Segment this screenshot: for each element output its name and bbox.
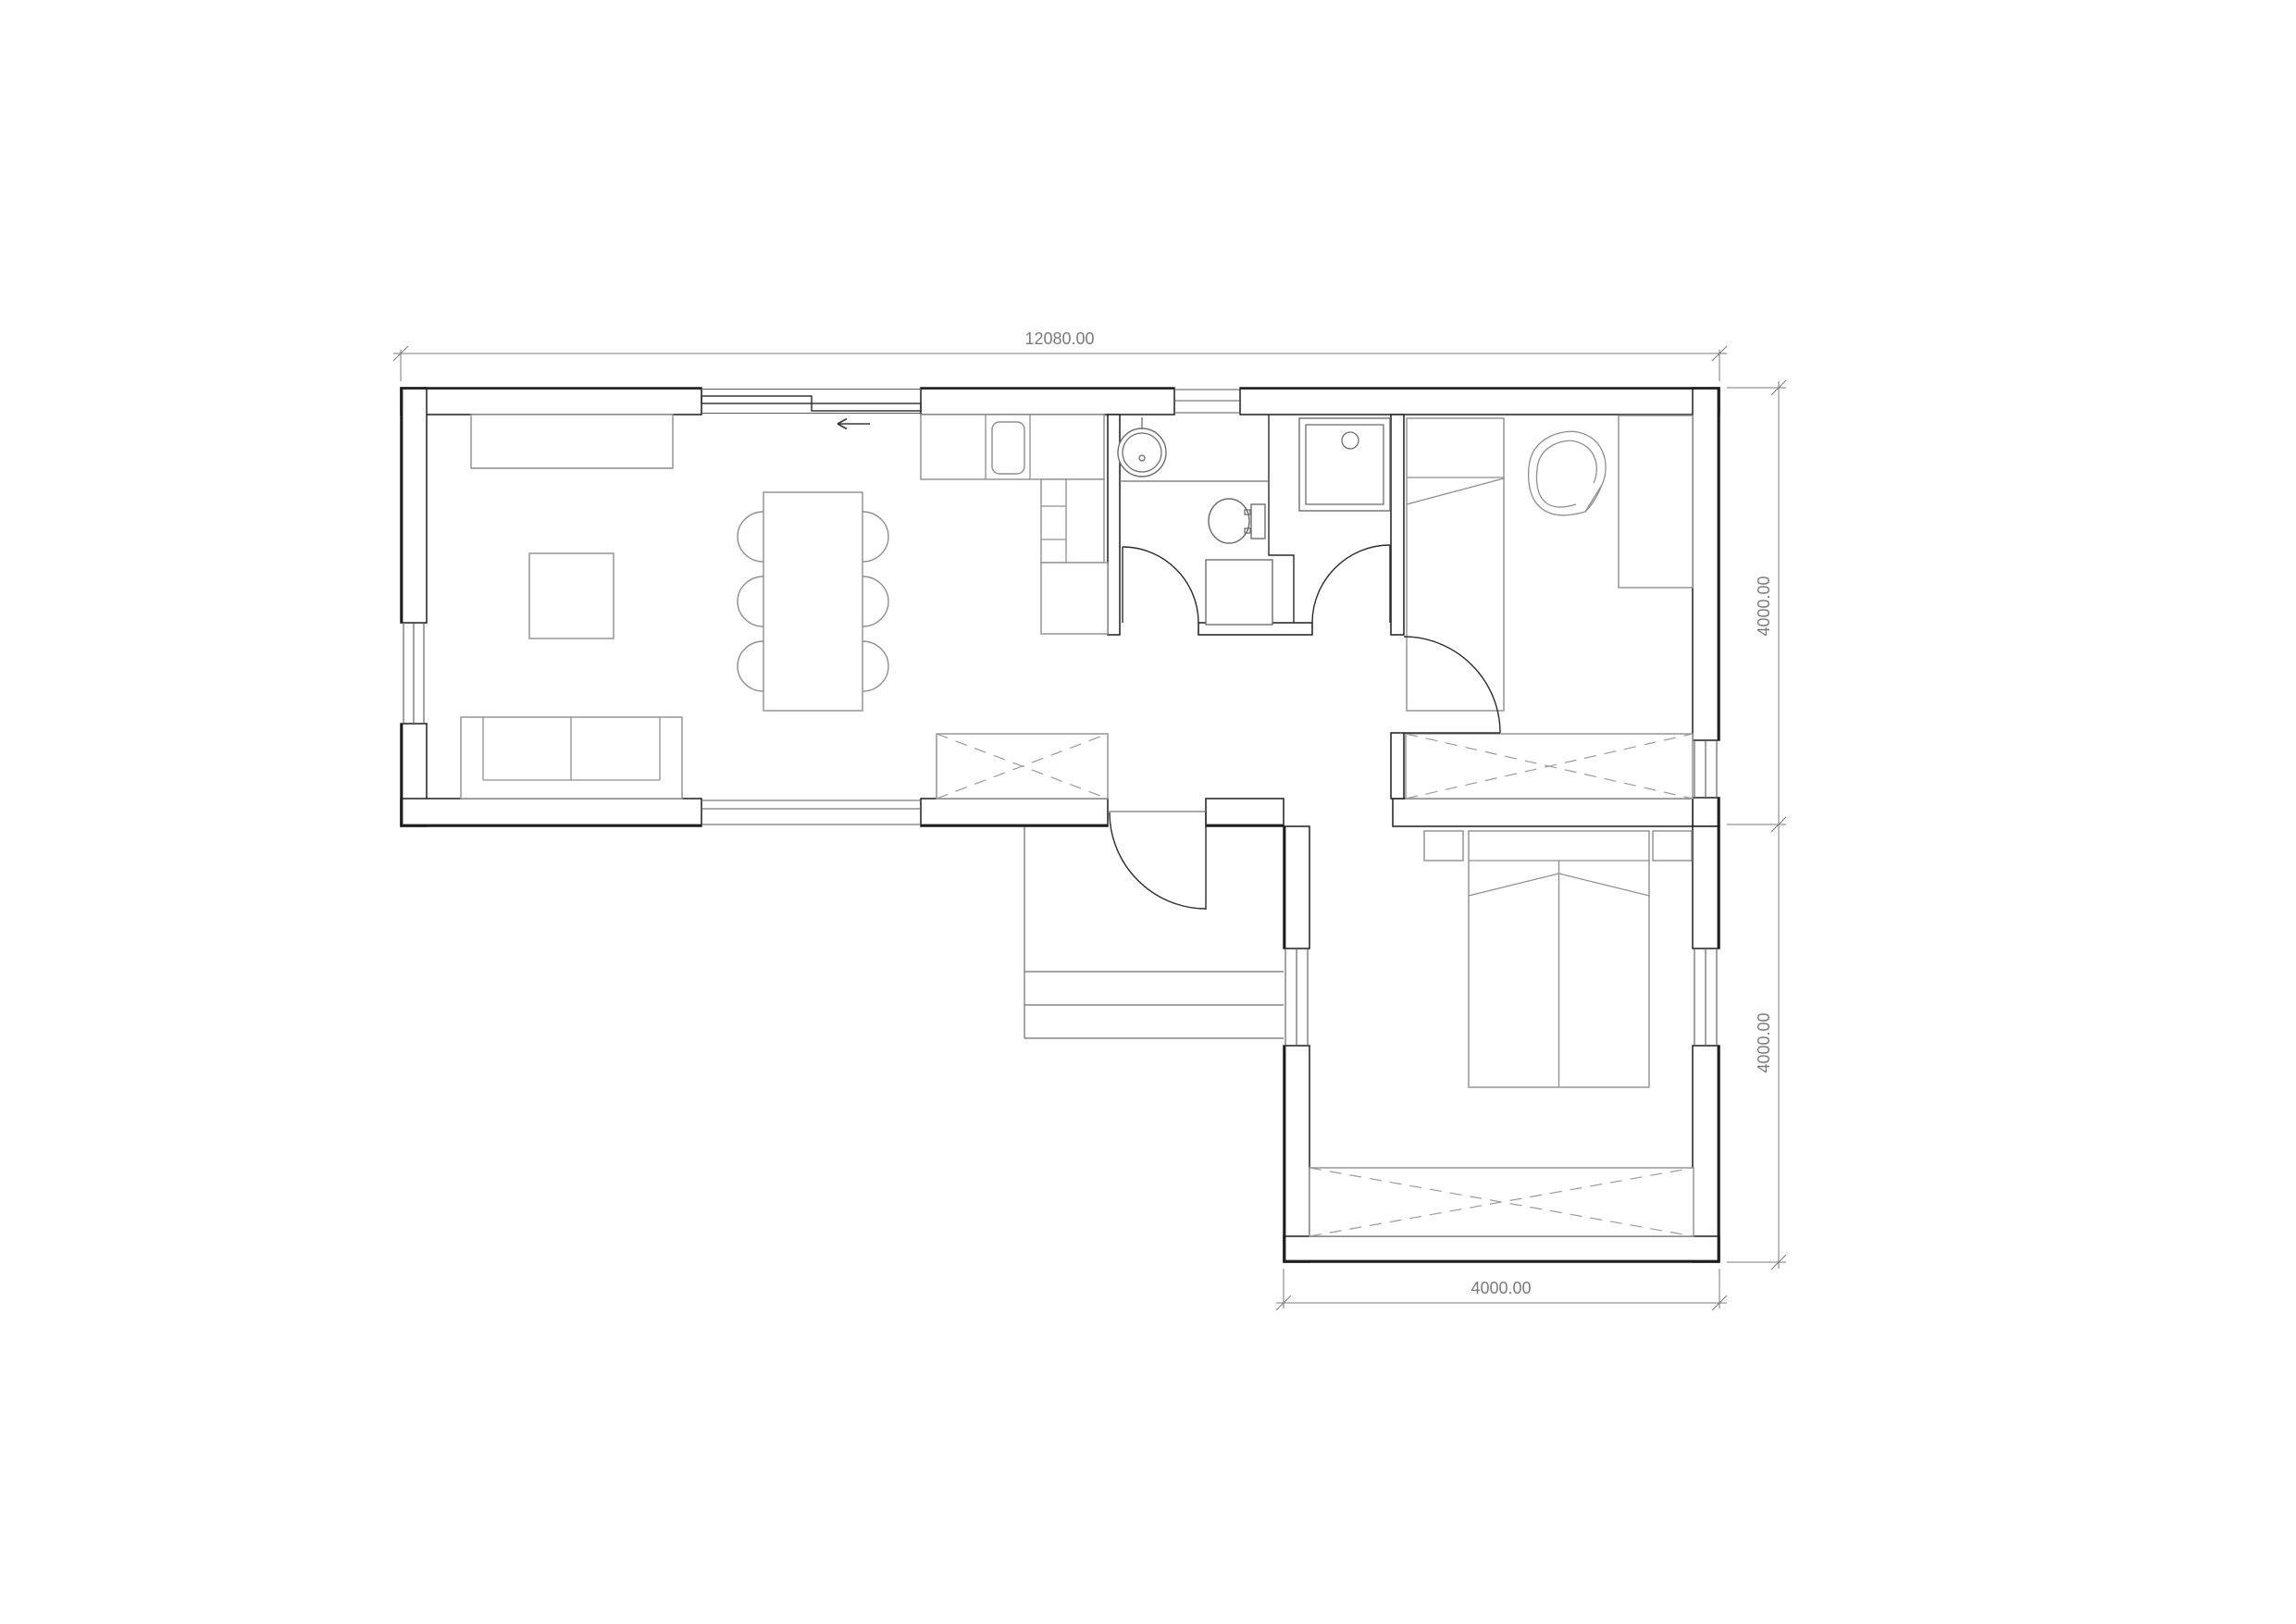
nightstand-right <box>1653 831 1692 861</box>
wall-south-middle <box>921 799 1108 826</box>
wall-wing-west-lower <box>1284 1046 1309 1262</box>
wc-door <box>1123 547 1198 623</box>
wall-top-left <box>401 388 701 415</box>
toilet <box>1209 499 1265 543</box>
window-living-south <box>701 800 921 824</box>
window-wing-west <box>1285 948 1308 1046</box>
sofa <box>461 717 682 799</box>
wall-east-upper <box>1693 388 1719 740</box>
wall-wing-east-lower <box>1693 1046 1719 1262</box>
window-bathroom-top <box>1174 390 1240 413</box>
dimension-label-bottom: 4000.00 <box>1471 1279 1531 1297</box>
wall-wing-east-upper <box>1693 826 1719 948</box>
wall-bedroom-west-lower <box>1391 733 1404 799</box>
washbasin <box>1118 417 1269 481</box>
floor-plan: 12080.00 4000.00 4000.00 4000.00 <box>0 0 2296 1624</box>
dimension-top: 12080.00 <box>393 329 1727 381</box>
sliding-window-top <box>701 390 921 414</box>
window-wing-east <box>1694 948 1717 1046</box>
dimension-bottom: 4000.00 <box>1276 1269 1727 1310</box>
dining-table <box>763 492 863 711</box>
floor-plan-canvas: 12080.00 4000.00 4000.00 4000.00 <box>0 0 2296 1624</box>
wall-east-mid <box>1693 798 1719 826</box>
window-west <box>403 623 424 724</box>
wall-south-right <box>1206 799 1284 826</box>
dimension-label-right-upper: 4000.00 <box>1755 576 1773 636</box>
kitchen-tall-unit <box>1041 563 1108 634</box>
wardrobe-bedroom-east <box>1406 734 1693 799</box>
wall-top-middle <box>921 388 1174 415</box>
coffee-table <box>529 553 614 638</box>
kitchen-sink <box>992 422 1024 474</box>
double-bed <box>1469 831 1649 1087</box>
wall-top-right <box>1240 388 1719 415</box>
dimension-right-lower: 4000.00 <box>1727 824 1786 1270</box>
wall-west-upper <box>401 388 427 623</box>
shower-room-door <box>1312 545 1390 623</box>
washing-machine <box>1206 560 1272 625</box>
wall-bedroom-west-upper <box>1391 415 1404 635</box>
desk <box>1619 415 1693 588</box>
dimension-label-right-lower: 4000.00 <box>1755 1012 1773 1072</box>
single-bed <box>1407 418 1504 711</box>
armchair <box>1529 431 1606 514</box>
entrance-steps <box>1024 826 1284 1038</box>
shower-tray <box>1299 418 1390 511</box>
wardrobe-bedroom-wing <box>1309 1168 1694 1236</box>
entry-door <box>1108 812 1206 910</box>
entry-closet <box>937 734 1108 799</box>
wall-wing-west-upper <box>1284 826 1309 948</box>
window-bedroom-east <box>1694 740 1717 798</box>
kitchen-counter <box>921 415 1104 479</box>
dimension-label-top: 12080.00 <box>1024 329 1094 348</box>
dimension-right-upper: 4000.00 <box>1727 380 1786 832</box>
wall-wing-top <box>1393 799 1693 826</box>
slide-direction-arrow-icon <box>838 419 870 429</box>
wall-south-left <box>401 799 701 826</box>
kitchen-cabinet <box>1041 479 1104 563</box>
nightstand-left <box>1424 831 1463 861</box>
wall-wing-bottom <box>1284 1236 1719 1262</box>
sideboard <box>471 415 673 468</box>
